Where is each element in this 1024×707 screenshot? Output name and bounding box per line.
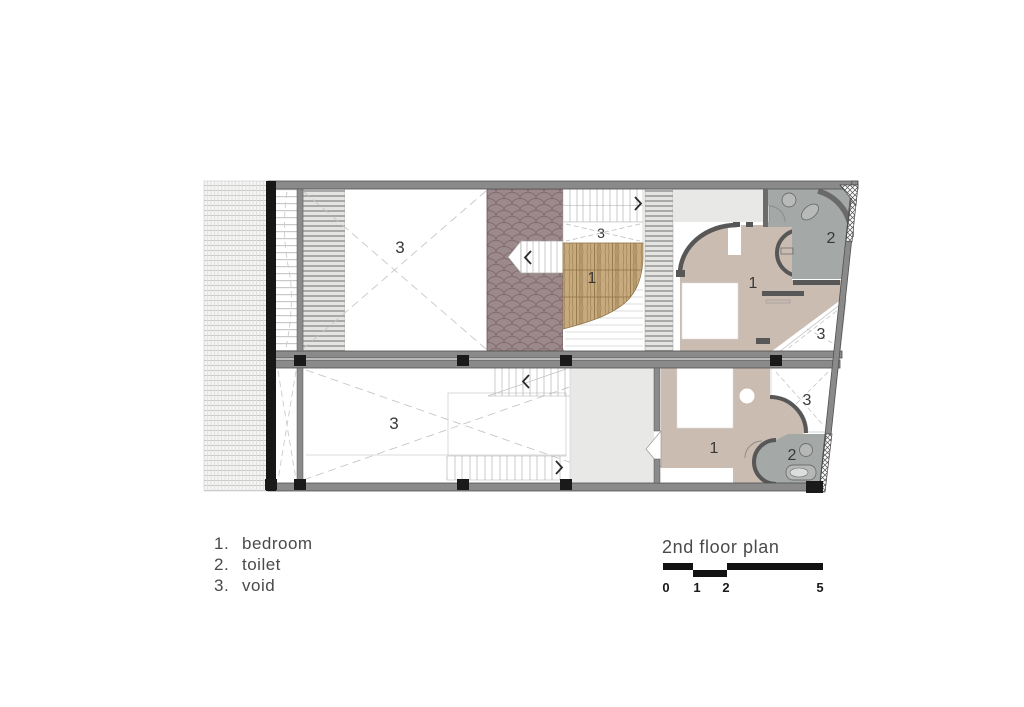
scale-bar-segment: [693, 570, 727, 577]
room-label: 2: [827, 230, 836, 247]
legend-label: void: [242, 575, 275, 596]
room-label: 3: [597, 225, 605, 241]
legend-number: 1.: [214, 533, 242, 554]
legend: 1. bedroom 2. toilet 3. void: [214, 533, 313, 596]
sink-fixture: [800, 444, 813, 457]
legend-number: 3.: [214, 575, 242, 596]
scale-bar: 0 1 2 5: [662, 537, 832, 597]
scale-tick: 5: [816, 580, 823, 595]
hall-area: [673, 189, 763, 222]
room-label: 1: [710, 440, 719, 457]
title-block: 2nd floor plan 0 1 2 5: [662, 537, 832, 597]
legend-number: 2.: [214, 554, 242, 575]
bottom-unit: [278, 368, 836, 487]
room-label: 3: [389, 414, 398, 433]
legend-item-toilet: 2. toilet: [214, 554, 313, 575]
bed: [677, 368, 733, 428]
room-label: 3: [395, 238, 404, 257]
room-label: 1: [749, 275, 758, 292]
party-wall: [266, 181, 276, 491]
top-main-void-area: [345, 189, 487, 351]
scale-tick: 1: [693, 580, 700, 595]
scale-bar-segment: [663, 563, 693, 570]
room-label: 3: [803, 392, 812, 409]
scale-bar-segment: [727, 563, 823, 570]
legend-item-bedroom: 1. bedroom: [214, 533, 313, 554]
bed: [682, 283, 738, 339]
room-label: 2: [788, 447, 797, 464]
room-label: 3: [817, 326, 826, 343]
landing-area: [570, 368, 654, 483]
exterior-texture-band: [204, 181, 268, 491]
scale-tick: 2: [722, 580, 729, 595]
sink-fixture: [782, 193, 796, 207]
legend-item-void: 3. void: [214, 575, 313, 596]
floor-plan-drawing: 3 3 1 1 2 3 3 1 2 3: [0, 0, 1024, 707]
legend-label: bedroom: [242, 533, 313, 554]
floor-plan-page: 3 3 1 1 2 3 3 1 2 3 1. bedroom 2. toilet…: [0, 0, 1024, 707]
desk: [762, 291, 804, 296]
scale-tick: 0: [662, 580, 669, 595]
legend-label: toilet: [242, 554, 281, 575]
stool: [740, 389, 755, 404]
room-label: 1: [588, 270, 597, 287]
